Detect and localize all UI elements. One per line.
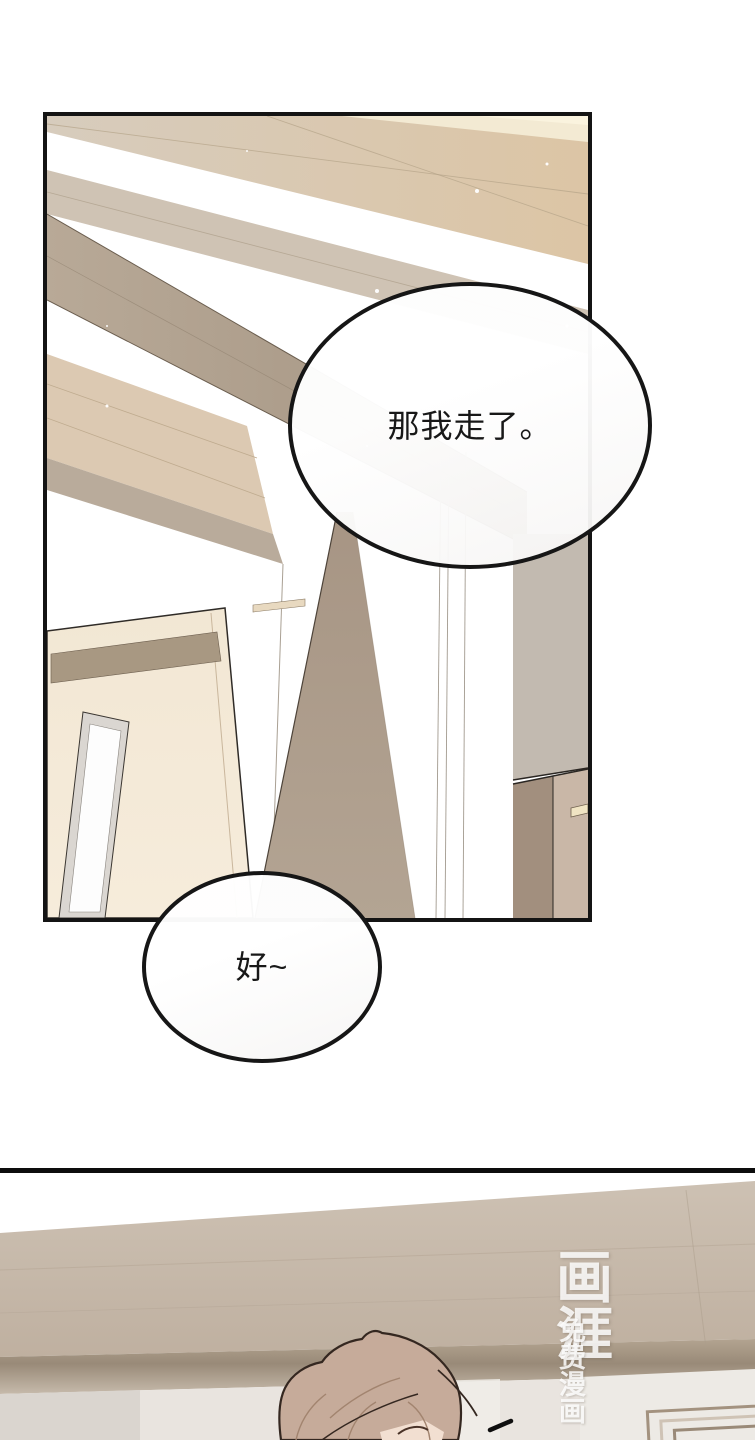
speech-bubble-2-text: 好~ [236,951,289,983]
comic-panel-2 [0,1168,755,1440]
speech-bubble-1: 那我走了。 [288,282,652,569]
cabinet [513,769,588,918]
wall-wedge [255,512,415,918]
comic-page: 那我走了。 好~ [0,0,755,1440]
watermark-tagline: 免费漫画 [559,1318,587,1426]
panel2-artwork [0,1173,755,1440]
speech-bubble-2: 好~ [142,871,382,1063]
speech-bubble-1-text: 那我走了。 [387,410,552,442]
gray-column [513,534,588,780]
